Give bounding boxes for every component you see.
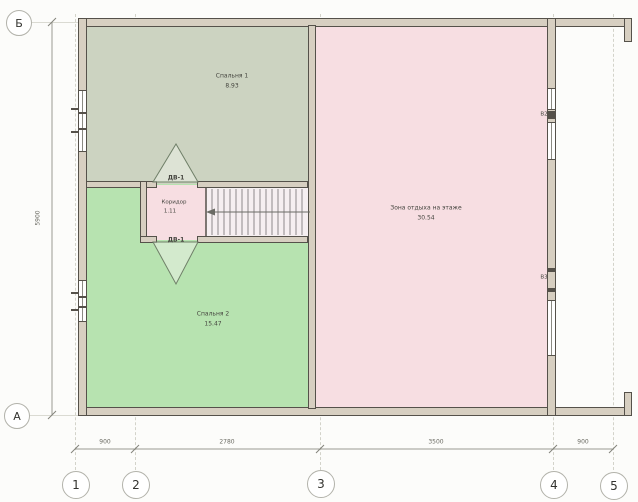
staircase — [206, 188, 309, 236]
wall-corridor-left — [140, 181, 147, 243]
window-left-lower-mark-2 — [71, 309, 78, 311]
dim-ticks-left — [48, 18, 56, 419]
window-right-lower-glass — [551, 301, 552, 355]
grid-bubble-col-4: 4 — [540, 471, 568, 499]
room-bedroom2-area: 15.47 — [204, 321, 221, 328]
window-left-upper-glass — [82, 91, 83, 151]
door-label-top: ДВ-1 — [168, 175, 185, 182]
window-left-lower-mullion-2 — [79, 306, 86, 308]
window-left-lower-glass — [82, 281, 83, 321]
window-right-lower-mark-1 — [548, 268, 555, 272]
window-left-lower-mark-1 — [71, 292, 78, 294]
wall-corridor-top-right — [197, 181, 308, 188]
floor-plan-canvas: Спальня 1 8.93 Спальня 2 15.47 Зона отды… — [0, 0, 638, 502]
door-label-bottom: ДВ-1 — [168, 237, 185, 244]
window-right-upper-mullion — [548, 111, 555, 119]
wall-terrace-end-bottom — [624, 392, 632, 416]
room-bedroom1-name: Спальня 1 — [216, 73, 248, 80]
window-label-right-upper: В2 — [540, 112, 547, 119]
room-corridor-name: Коридор — [162, 200, 187, 207]
grid-line-1 — [75, 14, 76, 470]
dim-bottom-3: 3500 — [428, 439, 443, 446]
wall-interior-vertical — [308, 25, 316, 409]
dim-left-total: 5900 — [35, 210, 42, 225]
wall-terrace-end-top — [624, 18, 632, 42]
grid-bubble-col-5: 5 — [600, 472, 628, 500]
wall-right — [547, 18, 556, 416]
grid-bubble-row-a: А — [4, 403, 30, 429]
window-right-lower-mark-2 — [548, 288, 555, 292]
room-lounge-area: 30.54 — [417, 215, 434, 222]
wall-corridor-bottom-left — [140, 236, 157, 243]
wall-left — [78, 18, 87, 416]
dim-bottom-4: 900 — [577, 439, 588, 446]
window-label-right-lower: В3 — [540, 275, 547, 282]
grid-bubble-col-5-label: 5 — [610, 479, 618, 493]
grid-line-a-leader — [28, 415, 78, 416]
grid-bubble-col-3-label: 3 — [317, 477, 325, 491]
window-left-upper-mark-1 — [71, 108, 78, 110]
grid-bubble-col-4-label: 4 — [550, 478, 558, 492]
grid-line-b-leader — [30, 22, 78, 23]
grid-bubble-row-a-label: А — [13, 410, 21, 423]
grid-bubble-col-3: 3 — [307, 470, 335, 498]
room-bedroom1-area: 8.93 — [225, 83, 238, 90]
room-bedroom1 — [86, 25, 310, 185]
room-lounge-name: Зона отдыха на этаже — [390, 205, 461, 212]
grid-bubble-col-1: 1 — [62, 471, 90, 499]
window-left-lower-mullion-1 — [79, 296, 86, 298]
dim-bottom-2: 2780 — [219, 439, 234, 446]
room-bedroom2-name: Спальня 2 — [197, 311, 229, 318]
window-left-upper-mullion-1 — [79, 112, 86, 114]
grid-bubble-col-2: 2 — [122, 471, 150, 499]
grid-line-5 — [613, 14, 614, 470]
dim-bottom-1: 900 — [99, 439, 110, 446]
window-right-upper-a-glass — [551, 89, 552, 109]
window-left-upper-mullion-2 — [79, 128, 86, 130]
wall-corridor-bottom-right — [197, 236, 308, 243]
grid-bubble-row-b: Б — [6, 10, 32, 36]
window-left-upper-mark-2 — [71, 131, 78, 133]
dim-ticks-bottom — [71, 445, 617, 453]
room-corridor-area: 1.11 — [164, 209, 176, 216]
grid-bubble-col-1-label: 1 — [72, 478, 80, 492]
grid-bubble-row-b-label: Б — [15, 17, 23, 30]
grid-bubble-col-2-label: 2 — [132, 478, 140, 492]
window-right-upper-b-glass — [551, 123, 552, 159]
